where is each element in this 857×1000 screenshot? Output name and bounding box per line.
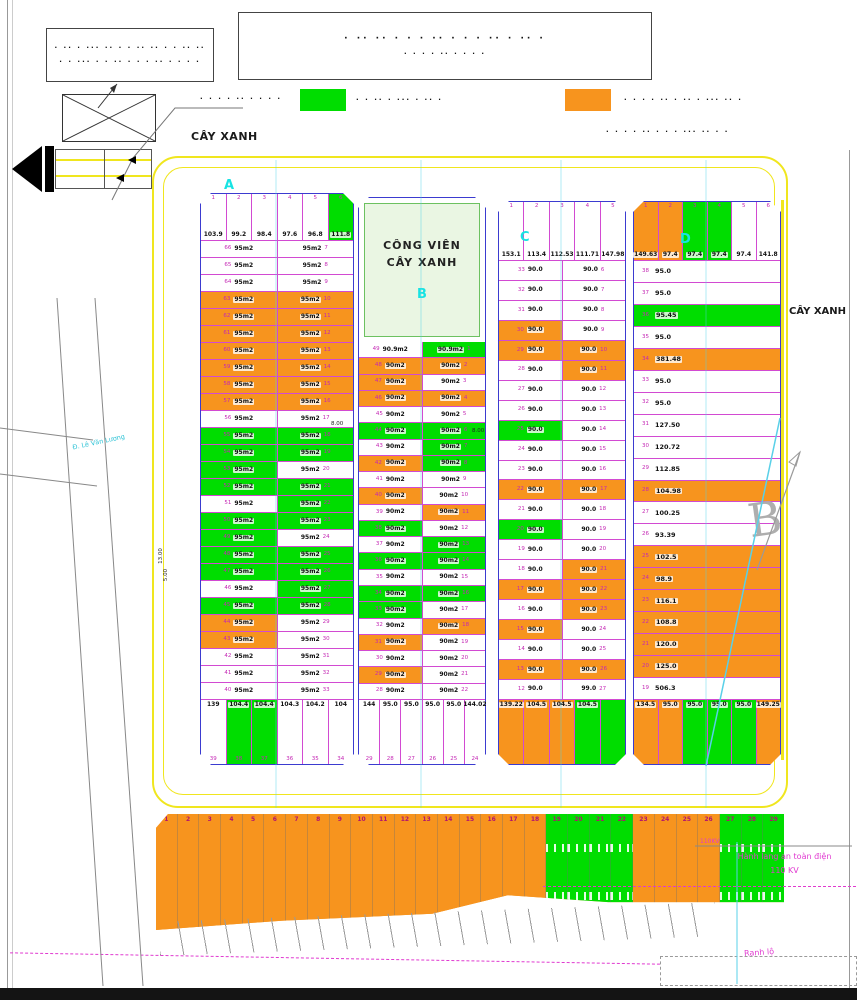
- lot-number: 5: [611, 204, 615, 210]
- lot-area: 95m2: [300, 586, 321, 592]
- main-title-box: · ·· ·· · · · ·· · · · ·· · ·· · · · · ·…: [238, 12, 652, 80]
- lot-number: 18: [324, 433, 331, 439]
- lot-area: 98.4: [257, 232, 272, 238]
- lot-cell: 95m210: [278, 292, 354, 308]
- lot-number: 6: [273, 817, 277, 823]
- block-A-rows: 6695m2 95m27 6595m2 95m28 6495m2 95m29 6…: [201, 241, 353, 699]
- lot-number: 10: [600, 348, 607, 354]
- lot-number: 36: [286, 757, 293, 763]
- lot-cell: 95.025: [444, 700, 465, 764]
- lot-number: 2: [237, 196, 241, 202]
- lot-cell: 90.019: [563, 520, 626, 539]
- lot-cell: 5695m2: [201, 411, 278, 427]
- lot-number: 25: [599, 647, 606, 653]
- lot-number: 11: [600, 367, 607, 373]
- lot-number: 35: [376, 575, 383, 581]
- lot-cell: 4090m2: [359, 488, 423, 503]
- lot-number: 12: [518, 687, 525, 693]
- lot-cell: 90.011: [563, 361, 626, 380]
- lot-row: 4890m2 90m22: [359, 358, 485, 374]
- lot-area: 97.6: [282, 232, 297, 238]
- lot-number: 24: [599, 627, 606, 633]
- park-title-line2: CÂY XANH: [387, 256, 458, 269]
- lot-cell: 90m215: [423, 570, 486, 585]
- lot-cell: 3290.0: [499, 281, 563, 300]
- lot-row: 3290.0 90.07: [499, 281, 625, 301]
- lot-area: 90m2: [440, 395, 461, 401]
- lot-number: 17: [600, 487, 607, 493]
- west-arrow-icon: [12, 146, 42, 192]
- lot-number: 56: [224, 416, 231, 422]
- lot-number: 8: [464, 461, 468, 467]
- lot-cell: 4290m2: [359, 456, 423, 471]
- lot-number: 2: [464, 363, 468, 369]
- lot-cell: 597.4: [732, 202, 757, 260]
- lot-cell: 1149.63: [634, 202, 659, 260]
- lot-row: 5995m2 95m214: [201, 360, 353, 377]
- lot-area: 90.0: [580, 347, 597, 353]
- lot-cell: 90m27: [423, 440, 486, 455]
- lot-area: 90.0: [527, 627, 544, 633]
- lot-number: 29: [517, 348, 524, 354]
- lot-number: 44: [223, 620, 230, 626]
- lot-cell: 3112.53: [550, 202, 575, 260]
- lot-area: 97.4: [662, 252, 679, 258]
- lot-area: 90.0: [528, 607, 543, 613]
- lot-cell: 5095m2: [201, 513, 278, 529]
- lot-row: 1490.0 90.025: [499, 640, 625, 660]
- lot-number: 7: [294, 817, 298, 823]
- lot-number: 19: [642, 686, 649, 692]
- lot-row: 1990.0 90.020: [499, 540, 625, 560]
- lot-area: 127.50: [655, 422, 680, 429]
- lot-number: 23: [600, 607, 607, 613]
- cay-xanh-right-label: CÂY XANH: [789, 306, 846, 317]
- lot-number: 19: [461, 640, 468, 646]
- lot-area: 90.0: [528, 647, 543, 653]
- lot-area: 90m2: [386, 574, 405, 580]
- lot-number: 31: [642, 422, 649, 428]
- lot-number: 20: [642, 664, 649, 670]
- block-A-bottom-row: 13939104.438104.437104.336104.23510434: [201, 699, 353, 764]
- lot-cell: 1890.0: [499, 560, 563, 579]
- subtitle-line2: · · ··· · · ·· · · · ·· · · · ·: [59, 58, 201, 66]
- lot-number: 16: [462, 591, 469, 597]
- ranh-lo-dashed-box: [660, 956, 857, 986]
- lot-row: 3190.0 90.08: [499, 301, 625, 321]
- lot-area: 104: [334, 702, 347, 708]
- lot-number: 16: [324, 399, 331, 405]
- lot-area: 95m2: [300, 552, 321, 558]
- lot-cell: 2290.0: [499, 480, 563, 499]
- lot-number: 23: [518, 467, 525, 473]
- lot-number: 20: [461, 656, 468, 662]
- lot-area: 95.45: [655, 312, 678, 319]
- lot-area: 90.0: [528, 407, 543, 413]
- lot-area: 90m2: [385, 428, 406, 434]
- lot-number: 8: [324, 263, 328, 269]
- lot-cell: 95.0: [659, 700, 684, 764]
- lot-number: 33: [323, 688, 330, 694]
- lot-number: 12: [324, 331, 331, 337]
- lot-area: 120.0: [655, 641, 678, 648]
- lot-row: 3590m2 90m215: [359, 570, 485, 586]
- lot-number: 42: [375, 461, 382, 467]
- lot-cell: 5495m2: [201, 445, 278, 461]
- lot-cell: 3795.0: [634, 283, 780, 305]
- lot-cell: 2890m2: [359, 684, 423, 699]
- lot-number: 51: [224, 501, 231, 507]
- lot-cell: 90.09: [563, 321, 626, 340]
- strip-lot: 9: [330, 814, 352, 930]
- lot-row: 5395m2 95m220: [201, 462, 353, 479]
- lot-cell: 4395m2: [201, 632, 278, 648]
- lot-number: 42: [224, 654, 231, 660]
- lot-number: 44: [375, 428, 382, 434]
- lot-cell: 95.0: [708, 700, 733, 764]
- lot-cell: 6695m2: [201, 241, 278, 257]
- lot-number: 22: [642, 620, 649, 626]
- lot-area: 90m2: [385, 460, 406, 466]
- lot-cell: 104.5: [524, 700, 549, 764]
- lot-cell: 95m220: [278, 462, 354, 478]
- lot-number: 30: [323, 637, 330, 643]
- lot-number: 25: [324, 552, 331, 558]
- lot-number: 4: [464, 396, 468, 402]
- lot-number: 28: [387, 757, 394, 763]
- lot-area: 90m2: [439, 656, 458, 662]
- corridor-dashed-line: [543, 886, 856, 887]
- lot-row: 4795m2 95m226: [201, 564, 353, 581]
- lot-row: 2490.0 90.015: [499, 441, 625, 461]
- lot-area: 95m2: [301, 671, 320, 677]
- lot-number: 6: [464, 428, 468, 434]
- lot-number: 24: [642, 576, 649, 582]
- lot-cell: 95m221: [278, 479, 354, 495]
- lot-area: 90.0: [528, 686, 543, 692]
- left-road-edge2: [57, 298, 103, 986]
- lot-area: 95m2: [300, 501, 321, 507]
- lot-number: 1: [467, 347, 471, 353]
- lot-cell: 1590.0: [499, 620, 563, 639]
- lot-cell: 4190m2: [359, 472, 423, 487]
- lot-number: 6: [339, 196, 343, 202]
- lot-cell: 90.022: [563, 580, 626, 599]
- lot-area: 95.0: [686, 702, 703, 708]
- north-arrow-letter: B: [744, 490, 785, 548]
- lot-cell: 95m215: [278, 377, 354, 393]
- lot-cell: 299.2: [227, 194, 253, 240]
- lot-number: 49: [373, 347, 380, 353]
- block-A: 1103.9299.2398.4497.6596.86111.8 6695m2 …: [200, 193, 354, 765]
- lot-row: 2090.0 90.019: [499, 520, 625, 540]
- lot-row: 4295m2 95m231: [201, 649, 353, 666]
- legend-orange-label1: · · · · ·· · ·· · ··· ·· ·: [624, 96, 743, 104]
- lot-number: 6: [767, 204, 771, 210]
- lot-cell: 90m217: [423, 602, 486, 617]
- lot-row: 2390.0 90.016: [499, 461, 625, 481]
- lot-row: 4095m2 95m233: [201, 683, 353, 699]
- lot-cell: 95m227: [278, 581, 354, 597]
- lot-area: 95m2: [234, 671, 253, 677]
- lot-area: 95m2: [233, 467, 254, 473]
- lot-area: 90.0: [527, 667, 544, 673]
- lot-row: 4690m2 90m24: [359, 391, 485, 407]
- lot-number: 3: [263, 196, 267, 202]
- lot-area: 95.0: [655, 400, 671, 407]
- lot-number: 28: [324, 603, 331, 609]
- lot-cell: 4995m2: [201, 530, 278, 546]
- lot-area: 95m2: [300, 365, 321, 371]
- lot-number: 36: [642, 313, 649, 319]
- lot-number: 3: [463, 379, 467, 385]
- lot-number: 15: [517, 627, 524, 633]
- lot-number: 35: [312, 757, 319, 763]
- lot-row: 3490m2 90m216: [359, 586, 485, 602]
- lot-cell: 95m219: [278, 445, 354, 461]
- lot-cell: 104.5: [550, 700, 575, 764]
- lot-cell: 2890.0: [499, 361, 563, 380]
- lot-number: 18: [518, 567, 525, 573]
- lot-row: 5895m2 95m215: [201, 377, 353, 394]
- boundary-dashed-line: [10, 952, 660, 964]
- lot-number: 32: [518, 288, 525, 294]
- lot-area: 506.3: [655, 685, 676, 692]
- lot-number: 41: [224, 671, 231, 677]
- lot-area: 90m2: [385, 395, 406, 401]
- lot-number: 7: [601, 288, 605, 294]
- lot-row: 3690m2 90m214: [359, 553, 485, 569]
- lot-number: 26: [518, 407, 525, 413]
- lot-area: 95m2: [233, 365, 254, 371]
- lot-cell: 2490.0: [499, 441, 563, 460]
- lot-area: 100.25: [655, 510, 680, 517]
- kv-line-label: 110KV: [700, 838, 720, 845]
- lot-area: 90m2: [385, 493, 406, 499]
- lot-cell: 6095m2: [201, 343, 278, 359]
- lot-number: 23: [324, 518, 331, 524]
- lot-cell: 5295m2: [201, 479, 278, 495]
- lot-number: 1: [212, 196, 216, 202]
- lot-cell: 90m218: [423, 619, 486, 634]
- lot-cell: 4890m2: [359, 358, 423, 373]
- lot-cell: 90m25: [423, 407, 486, 422]
- lot-number: 25: [517, 427, 524, 433]
- lot-area: 90.0: [528, 567, 543, 573]
- lot-cell: 134.5: [634, 700, 659, 764]
- lot-number: 21: [642, 642, 649, 648]
- lot-area: 90.0: [581, 627, 596, 633]
- lot-cell: 95m211: [278, 309, 354, 325]
- lot-number: 34: [375, 591, 382, 597]
- right-road-edge: [781, 200, 784, 760]
- lot-row: 6095m2 95m213: [201, 343, 353, 360]
- lot-area: 90.0: [527, 527, 544, 533]
- lot-area: 147.98: [601, 252, 624, 258]
- lot-cell: 497.6: [278, 194, 304, 240]
- lot-number: 14: [518, 647, 525, 653]
- north-arrowhead-icon: [789, 452, 800, 466]
- lot-number: 19: [518, 547, 525, 553]
- subtitle-line1: · ·· · ··· ·· · · ·· ·· · · ·· ··: [54, 44, 205, 52]
- lot-row: 4790m2 90m23: [359, 375, 485, 391]
- lot-number: 5: [314, 196, 318, 202]
- lot-area: 90.0: [528, 307, 543, 313]
- lot-row: 3890m2 90m212: [359, 521, 485, 537]
- lot-area: 90.0: [580, 367, 597, 373]
- lot-number: 52: [223, 484, 230, 490]
- lot-number: 22: [517, 487, 524, 493]
- lot-number: 58: [223, 382, 230, 388]
- lot-area: 90.9m2: [383, 347, 408, 353]
- lot-cell: 90m210: [423, 488, 486, 503]
- lot-row: 4495m2 95m229: [201, 615, 353, 632]
- lot-area: 99.2: [231, 232, 246, 238]
- left-branch-road2: [0, 474, 97, 486]
- lot-row: 5795m2 95m216: [201, 394, 353, 411]
- lot-row: 2290.0 90.017: [499, 480, 625, 500]
- lot-number: 14: [462, 558, 469, 564]
- lot-number: 29: [366, 757, 373, 763]
- lot-row: 6695m2 95m27: [201, 241, 353, 258]
- lot-cell: 90m29: [423, 472, 486, 487]
- lot-cell: 596.8: [303, 194, 329, 240]
- lot-area: 104.5: [577, 702, 598, 708]
- lot-cell: 90m214: [423, 553, 486, 568]
- lot-area: 90.0: [583, 267, 598, 273]
- lot-number: 3: [560, 204, 564, 210]
- lot-area: 95m2: [233, 314, 254, 320]
- lot-number: 32: [376, 623, 383, 629]
- lot-row: 1690.0 90.023: [499, 600, 625, 620]
- lot-area: 90m2: [439, 493, 458, 499]
- lot-cell: 90.023: [563, 600, 626, 619]
- lot-area: 97.4: [711, 252, 728, 258]
- lot-row: 4595m2 95m228: [201, 598, 353, 615]
- lot-row: 2990.0 90.010: [499, 341, 625, 361]
- lot-area: 95m2: [233, 620, 254, 626]
- lot-area: 104.3: [280, 702, 299, 708]
- lot-cell: 10434: [329, 700, 354, 764]
- lot-area: 95.0: [383, 702, 398, 708]
- lot-number: 2: [535, 204, 539, 210]
- lot-cell: 6395m2: [201, 292, 278, 308]
- lot-area: 90m2: [439, 672, 458, 678]
- lot-cell: 3395.0: [634, 371, 780, 393]
- lot-cell: 90m221: [423, 667, 486, 682]
- lot-cell: 4690m2: [359, 391, 423, 406]
- lot-area: 95m2: [300, 569, 321, 575]
- lot-cell: 95m232: [278, 666, 354, 682]
- lot-area: 95m2: [233, 484, 254, 490]
- frame-line-right: [849, 150, 850, 988]
- lot-cell: 90.025: [563, 640, 626, 659]
- lot-area: 95m2: [301, 535, 320, 541]
- lot-area: 113.4: [527, 252, 546, 258]
- lot-area: 90.0: [581, 527, 596, 533]
- lot-row: 3390.0 90.06: [499, 261, 625, 281]
- lot-area: 90m2: [385, 672, 406, 678]
- lot-cell: 95m224: [278, 530, 354, 546]
- lot-number: 20: [599, 547, 606, 553]
- lot-cell: 1103.9: [201, 194, 227, 240]
- lot-row: 3090.0 90.09: [499, 321, 625, 341]
- lot-area: 95m2: [234, 280, 253, 286]
- lot-cell: 144.0224: [465, 700, 485, 764]
- lot-area: 90.9m2: [437, 347, 464, 353]
- lot-row: 2890.0 90.011: [499, 361, 625, 381]
- lot-area: 95.0: [425, 702, 440, 708]
- subtitle-box: · ·· · ··· ·· · · ·· ·· · · ·· ·· · · ··…: [46, 28, 214, 82]
- lot-area: 95.0: [655, 290, 671, 297]
- lot-area: 95m2: [233, 518, 254, 524]
- lot-number: 23: [642, 598, 649, 604]
- lot-number: 28: [642, 488, 649, 494]
- lot-area: 95m2: [234, 263, 253, 269]
- lot-area: 90m2: [441, 379, 460, 385]
- lot-area: 95m2: [303, 263, 322, 269]
- lot-cell: 5595m2: [201, 428, 278, 444]
- lot-row: 4390m2 90m27: [359, 440, 485, 456]
- lot-row: 3790m2 90m213: [359, 537, 485, 553]
- lot-number: 28: [518, 367, 525, 373]
- lot-cell: 4490m2: [359, 423, 423, 438]
- lot-number: 66: [224, 246, 231, 252]
- lot-number: 50: [223, 518, 230, 524]
- lot-number: 45: [376, 412, 383, 418]
- lot-cell: 3690m2: [359, 553, 423, 568]
- lot-cell: 90m213: [423, 537, 486, 552]
- lot-cell: 29112.85: [634, 459, 780, 481]
- lot-area: 90.0: [580, 567, 597, 573]
- lot-number: 29: [642, 466, 649, 472]
- lot-cell: 1490.0: [499, 640, 563, 659]
- lot-row: 5195m2 95m222: [201, 496, 353, 513]
- lot-area: 90.0: [527, 587, 544, 593]
- block-D-bottom-row: 134.595.095.095.095.0149.25: [634, 699, 780, 764]
- lot-number: 17: [461, 607, 468, 613]
- lot-cell: 1290.0: [499, 680, 563, 699]
- lot-row: 3190m2 90m219: [359, 635, 485, 651]
- legend-orange-label2: · · · · ·· · · · ··· ·· · ·: [606, 128, 729, 136]
- lot-row: 2690.0 90.013: [499, 401, 625, 421]
- lot-row: 4990.9m2 90.9m21: [359, 342, 485, 358]
- lot-cell: 90m219: [423, 635, 486, 650]
- lot-cell: 5395m2: [201, 462, 278, 478]
- lot-number: 29: [323, 620, 330, 626]
- dim-label-3: 13.00: [158, 548, 164, 564]
- block-C-label: C: [520, 230, 530, 245]
- lot-cell: 6111.8: [329, 194, 354, 240]
- lot-area: 98.9: [655, 576, 673, 583]
- lot-number: 14: [324, 365, 331, 371]
- lot-number: 53: [223, 467, 230, 473]
- lot-area: 95.0: [662, 702, 679, 708]
- lot-number: 34: [642, 357, 649, 363]
- lot-number: 43: [223, 637, 230, 643]
- lot-number: 27: [726, 817, 734, 823]
- lot-number: 32: [642, 400, 649, 406]
- lot-cell: 3190.0: [499, 301, 563, 320]
- lot-area: 104.5: [552, 702, 573, 708]
- lot-cell: 95m226: [278, 564, 354, 580]
- lot-number: 27: [642, 510, 649, 516]
- lot-number: 15: [461, 575, 468, 581]
- lot-cell: 95.028: [380, 700, 401, 764]
- lot-cell: 90m28: [423, 456, 486, 471]
- lot-area: 95m2: [233, 331, 254, 337]
- lot-number: 12: [599, 387, 606, 393]
